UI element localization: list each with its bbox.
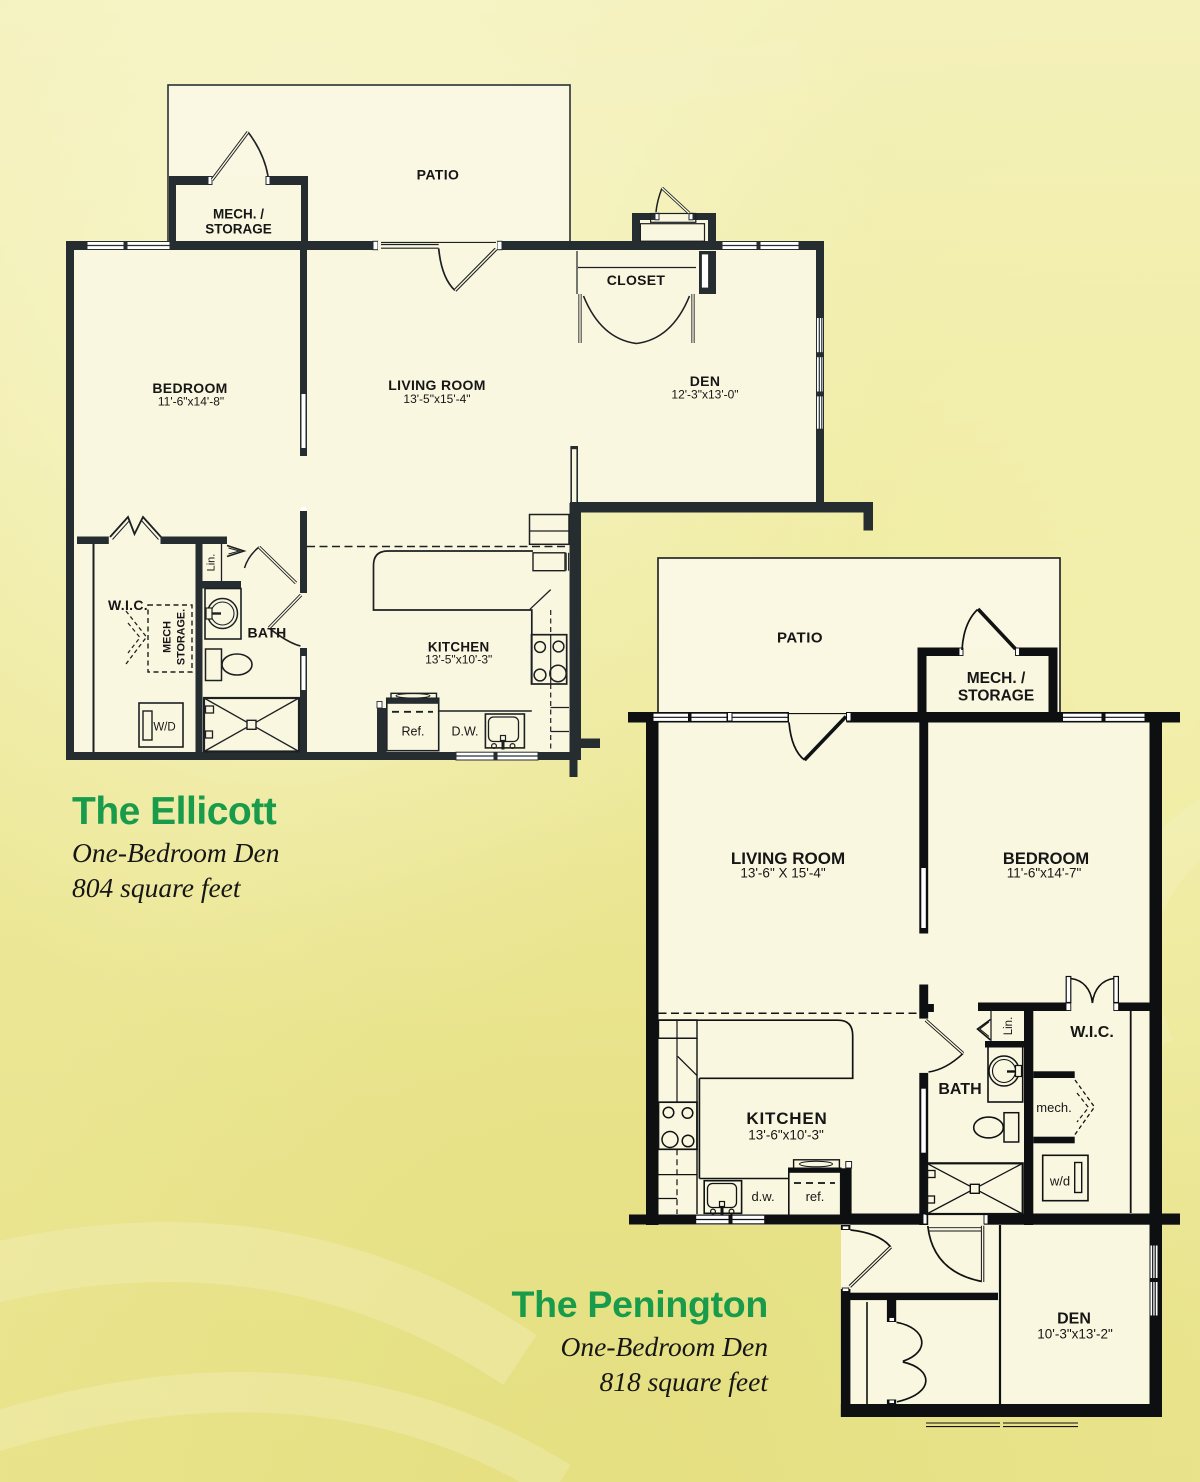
svg-text:One-Bedroom Den: One-Bedroom Den — [72, 837, 279, 868]
svg-text:The Penington: The Penington — [512, 1283, 769, 1325]
svg-text:13'-5"x15'-4": 13'-5"x15'-4" — [403, 392, 470, 406]
svg-text:STORAGE: STORAGE — [958, 688, 1034, 705]
svg-text:818 square feet: 818 square feet — [599, 1366, 769, 1397]
svg-text:MECH. /: MECH. / — [213, 206, 264, 221]
svg-text:MECH. /: MECH. / — [967, 670, 1026, 687]
svg-text:mech.: mech. — [1036, 1100, 1071, 1115]
svg-text:Lin.: Lin. — [206, 554, 218, 572]
svg-text:804 square feet: 804 square feet — [72, 872, 242, 903]
svg-text:Ref.: Ref. — [402, 725, 425, 739]
svg-text:11'-6"x14'-7": 11'-6"x14'-7" — [1007, 866, 1082, 881]
svg-text:The Ellicott: The Ellicott — [72, 790, 277, 833]
svg-text:W/D: W/D — [153, 722, 175, 734]
svg-text:STORAGE.: STORAGE. — [176, 609, 188, 665]
svg-text:10'-3"x13'-2": 10'-3"x13'-2" — [1037, 1327, 1113, 1342]
svg-text:DEN: DEN — [1057, 1311, 1091, 1328]
svg-text:12'-3"x13'-0": 12'-3"x13'-0" — [671, 388, 738, 402]
svg-text:13'-5"x10'-3": 13'-5"x10'-3" — [425, 653, 492, 667]
svg-text:13'-6"x10'-3": 13'-6"x10'-3" — [748, 1128, 824, 1143]
svg-text:LIVING ROOM: LIVING ROOM — [388, 377, 485, 393]
svg-text:W.I.C.: W.I.C. — [108, 597, 148, 613]
svg-text:13'-6" X 15'-4": 13'-6" X 15'-4" — [740, 866, 825, 881]
svg-text:W.I.C.: W.I.C. — [1070, 1024, 1114, 1041]
svg-text:11'-6"x14'-8": 11'-6"x14'-8" — [158, 395, 224, 409]
svg-text:BATH: BATH — [247, 625, 286, 641]
svg-text:Lin.: Lin. — [1003, 1017, 1015, 1036]
svg-text:CLOSET: CLOSET — [607, 272, 666, 288]
svg-text:BATH: BATH — [938, 1081, 981, 1098]
svg-text:PATIO: PATIO — [777, 630, 823, 647]
svg-text:w/d: w/d — [1049, 1174, 1070, 1189]
svg-text:d.w.: d.w. — [751, 1189, 774, 1204]
svg-text:KITCHEN: KITCHEN — [746, 1109, 827, 1128]
svg-text:D.W.: D.W. — [451, 725, 478, 739]
svg-text:ref.: ref. — [806, 1189, 825, 1204]
svg-text:One-Bedroom Den: One-Bedroom Den — [561, 1331, 768, 1362]
svg-text:MECH: MECH — [162, 621, 174, 653]
svg-text:PATIO: PATIO — [417, 167, 460, 183]
svg-text:STORAGE: STORAGE — [205, 221, 272, 236]
